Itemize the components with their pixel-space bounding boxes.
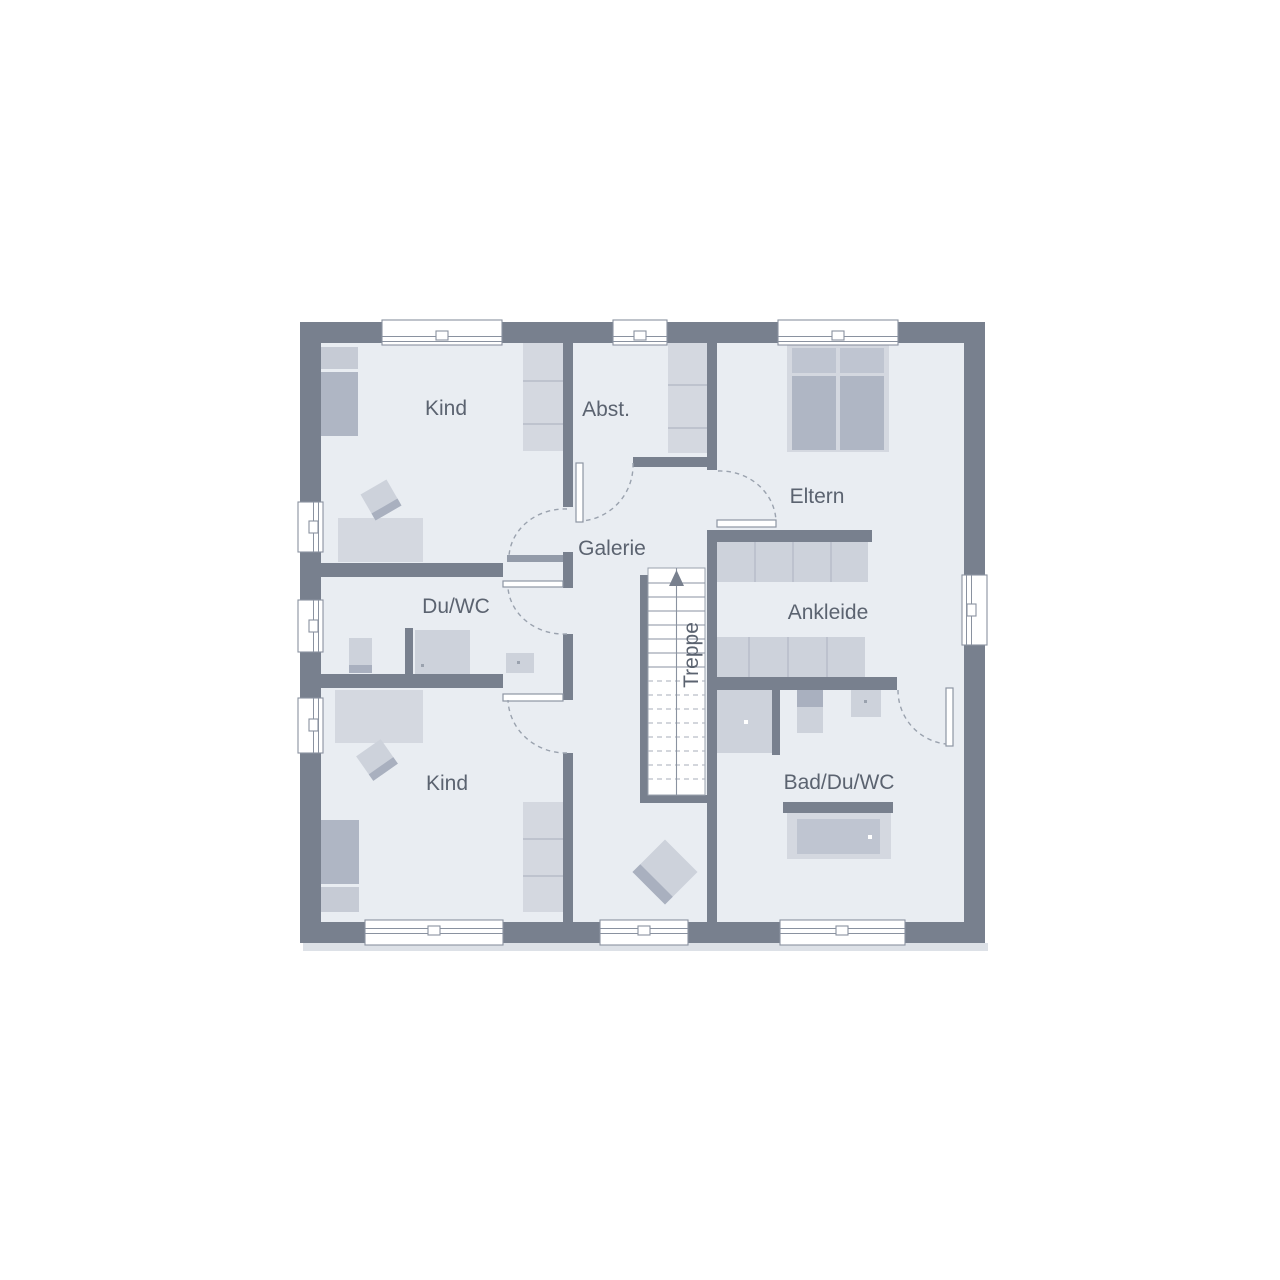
bed-icon: [321, 347, 358, 436]
wall: [563, 343, 573, 507]
room-label-treppe: Treppe: [680, 622, 703, 688]
washbasin-icon: [506, 653, 534, 673]
window-icon: [600, 920, 688, 945]
desk-icon: [338, 518, 423, 562]
wall: [633, 457, 717, 467]
shower-icon: [415, 630, 470, 675]
wardrobe-icon: [523, 802, 563, 912]
floor-plan: Kind Abst. Eltern Galerie Du/WC Ankleide…: [0, 0, 1280, 1280]
bed-icon: [321, 820, 359, 912]
toilet-icon: [349, 638, 372, 673]
door-leaf: [576, 463, 583, 522]
window-icon: [382, 320, 502, 345]
window-icon: [298, 502, 323, 552]
wall: [640, 575, 648, 803]
door-leaf: [946, 688, 953, 746]
wall: [707, 677, 897, 690]
window-icon: [298, 600, 323, 652]
shower-icon: [717, 690, 772, 753]
door-leaf: [717, 520, 776, 527]
wardrobe-row-icon: [710, 637, 865, 677]
wardrobe-icon: [523, 343, 563, 451]
wall: [321, 563, 503, 577]
room-label-eltern: Eltern: [790, 485, 845, 508]
window-icon: [780, 920, 905, 945]
wall: [707, 530, 717, 922]
wall: [707, 343, 717, 470]
wardrobe-row-icon: [717, 542, 868, 582]
room-label-du-wc: Du/WC: [422, 595, 490, 618]
room-label-galerie: Galerie: [578, 537, 646, 560]
room-label-kind-bottom: Kind: [426, 772, 468, 795]
door-leaf: [503, 581, 563, 587]
bathtub-icon: [783, 802, 893, 859]
window-icon: [778, 320, 898, 345]
room-label-ankleide: Ankleide: [788, 601, 869, 624]
window-icon: [365, 920, 503, 945]
room-label-abst: Abst.: [582, 398, 630, 421]
wall: [405, 628, 413, 688]
wall: [563, 552, 573, 588]
window-icon: [298, 698, 323, 753]
room-label-bad-du-wc: Bad/Du/WC: [784, 771, 895, 794]
door-leaf: [503, 694, 563, 701]
room-label-kind-top: Kind: [425, 397, 467, 420]
desk-icon: [335, 690, 423, 743]
window-icon: [962, 575, 987, 645]
double-bed-icon: [787, 344, 889, 452]
wall: [640, 795, 710, 803]
washbasin-icon: [797, 690, 823, 733]
window-icon: [613, 320, 667, 345]
door-leaf: [507, 555, 563, 562]
wall: [563, 753, 573, 922]
shelf-icon: [668, 343, 707, 453]
floor-plan-page: Kind Abst. Eltern Galerie Du/WC Ankleide…: [0, 0, 1280, 1280]
wall: [707, 530, 872, 542]
wall: [563, 634, 573, 700]
toilet-icon: [851, 690, 881, 717]
wall: [772, 688, 780, 755]
